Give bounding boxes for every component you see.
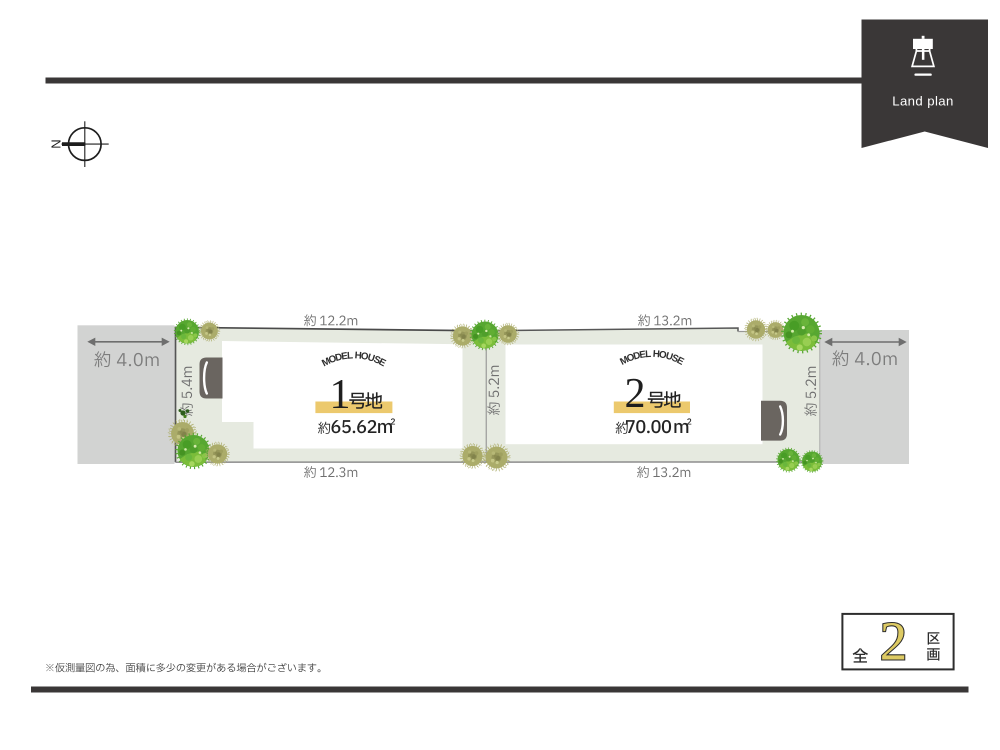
svg-text:L: L [645,349,652,360]
svg-text:1: 1 [330,372,351,418]
svg-text:2: 2 [625,371,646,417]
svg-text:N: N [49,139,64,148]
svg-text:Land plan: Land plan [892,94,954,109]
svg-text:2: 2 [880,611,908,672]
svg-text:L: L [347,350,354,361]
